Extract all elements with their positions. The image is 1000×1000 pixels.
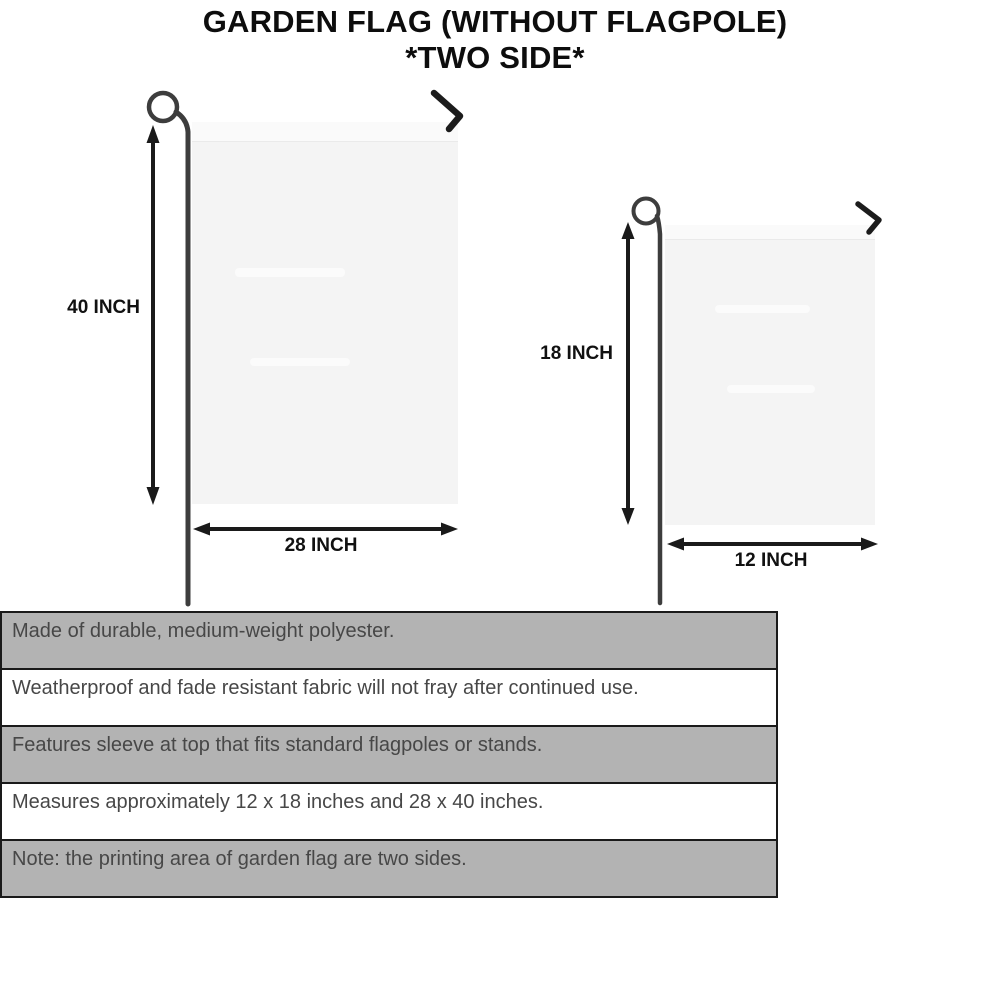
faint-print-mark [235, 268, 345, 277]
feature-row: Features sleeve at top that fits standar… [0, 725, 778, 784]
width-arrow-large [193, 523, 458, 536]
page-title-line1: GARDEN FLAG (WITHOUT FLAGPOLE) [0, 4, 990, 40]
width-arrow-small [667, 538, 878, 551]
page-title: GARDEN FLAG (WITHOUT FLAGPOLE) *TWO SIDE… [0, 4, 990, 75]
feature-row: Measures approximately 12 x 18 inches an… [0, 782, 778, 841]
height-arrow-large [147, 125, 160, 505]
flagpole-loop-icon [149, 93, 177, 121]
faint-print-mark [727, 385, 815, 393]
height-label-small: 18 INCH [503, 343, 613, 365]
garden-flag-small [665, 225, 875, 525]
flagpole-large [149, 93, 188, 604]
product-diagram: GARDEN FLAG (WITHOUT FLAGPOLE) *TWO SIDE… [0, 0, 1000, 1000]
feature-list: Made of durable, medium-weight polyester… [0, 611, 778, 898]
garden-flag-large [192, 122, 458, 504]
flag-sleeve-small [665, 225, 875, 240]
height-label-large: 40 INCH [30, 297, 140, 319]
faint-print-mark [250, 358, 350, 366]
height-arrow-small [622, 222, 635, 525]
width-label-large: 28 INCH [241, 535, 401, 557]
feature-row: Made of durable, medium-weight polyester… [0, 611, 778, 670]
faint-print-mark [715, 305, 810, 313]
width-label-small: 12 INCH [691, 550, 851, 572]
feature-row: Weatherproof and fade resistant fabric w… [0, 668, 778, 727]
flag-sleeve-large [192, 122, 458, 142]
page-title-line2: *TWO SIDE* [0, 40, 990, 76]
flagpole-small [634, 199, 661, 604]
flagpole-rod [176, 112, 188, 604]
feature-row: Note: the printing area of garden flag a… [0, 839, 778, 898]
flagpole-loop-icon [634, 199, 659, 224]
flagpole-rod [657, 216, 660, 603]
